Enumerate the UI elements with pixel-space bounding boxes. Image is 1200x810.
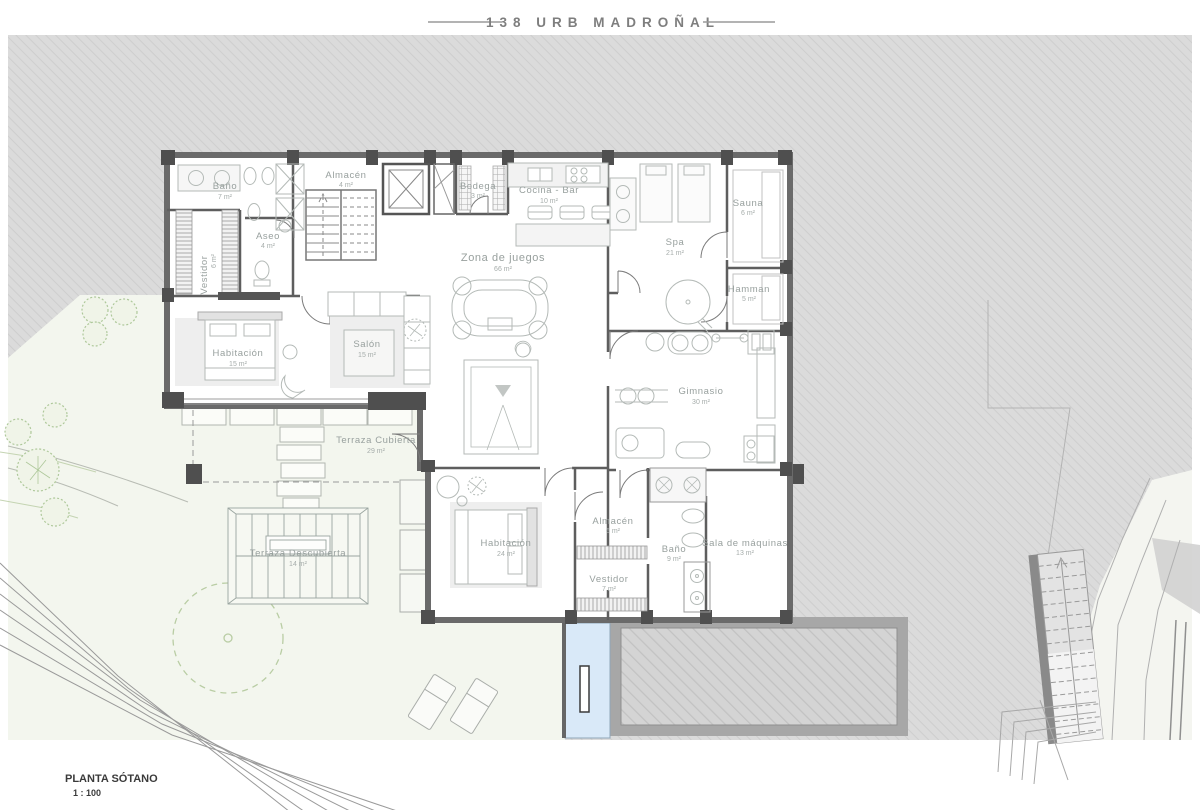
room-label-banio9: Baño xyxy=(662,544,687,555)
room-label-vestidor6: Vestidor xyxy=(199,255,210,294)
room-label-hamman: Hamman xyxy=(728,284,770,295)
room-area-salon: 15 m² xyxy=(358,352,377,359)
room-label-almacen6: Almacén xyxy=(592,516,633,527)
planter-boxes xyxy=(400,480,426,612)
room-area-vestidor6: 6 m² xyxy=(211,253,218,268)
room-area-almacen4: 4 m² xyxy=(339,182,354,189)
room-label-sauna: Sauna xyxy=(733,198,764,209)
room-label-aseo: Aseo xyxy=(256,231,280,242)
room-area-habitacion15: 15 m² xyxy=(229,361,248,368)
room-label-spa: Spa xyxy=(666,237,685,248)
floor-plan-drawing: Baño 7 m² Vestidor 6 m² Aseo 4 m² Almacé… xyxy=(0,0,1200,810)
pool-skimmer xyxy=(580,666,589,712)
room-area-habitacion24: 24 m² xyxy=(497,551,516,558)
room-label-bodega: Bodega xyxy=(460,181,496,192)
room-area-zona-juegos: 66 m² xyxy=(494,266,513,273)
room-label-banio7: Baño xyxy=(213,181,238,192)
room-area-vestidor7: 7 m² xyxy=(602,586,617,593)
room-area-bodega: 3 m² xyxy=(471,193,486,200)
room-area-almacen6: 6 m² xyxy=(606,528,621,535)
room-label-gimnasio: Gimnasio xyxy=(679,386,724,397)
room-area-aseo: 4 m² xyxy=(261,243,276,250)
room-area-spa: 21 m² xyxy=(666,250,685,257)
room-label-vestidor7: Vestidor xyxy=(589,574,628,585)
courtyard xyxy=(610,617,908,736)
plan-scale: 1 : 100 xyxy=(73,788,101,798)
drawing-title: 138 URB MADROÑAL xyxy=(486,15,720,30)
room-area-banio9: 9 m² xyxy=(667,556,682,563)
pool xyxy=(562,620,610,738)
room-label-habitacion24: Habitación xyxy=(481,538,532,549)
room-label-zona-juegos: Zona de juegos xyxy=(461,252,545,264)
floor-plan-sheet: Baño 7 m² Vestidor 6 m² Aseo 4 m² Almacé… xyxy=(0,0,1200,810)
room-label-cocina: Cocina - Bar xyxy=(519,185,579,196)
room-area-sala-maquinas: 13 m² xyxy=(736,550,755,557)
room-area-terraza-cubierta: 29 m² xyxy=(367,448,386,455)
room-label-sala-maquinas: Sala de máquinas xyxy=(702,538,788,549)
room-area-cocina: 10 m² xyxy=(540,198,559,205)
room-area-sauna: 6 m² xyxy=(741,210,756,217)
room-area-gimnasio: 30 m² xyxy=(692,399,711,406)
room-area-terraza-descubierta: 14 m² xyxy=(289,561,308,568)
room-area-hamman: 5 m² xyxy=(742,296,757,303)
room-label-terraza-cubierta: Terraza Cubierta xyxy=(336,435,416,446)
room-area-banio7: 7 m² xyxy=(218,194,233,201)
room-label-terraza-descubierta: Terraza Descubierta xyxy=(250,548,347,559)
room-label-habitacion15: Habitación xyxy=(213,348,264,359)
room-label-almacen4: Almacén xyxy=(325,170,366,181)
plan-name: PLANTA SÓTANO xyxy=(65,772,158,785)
room-label-salon: Salón xyxy=(353,339,380,350)
